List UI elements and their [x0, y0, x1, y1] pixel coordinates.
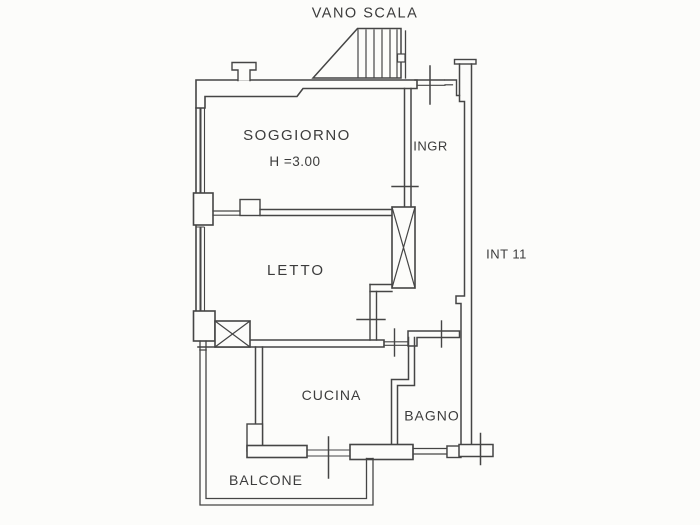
room-label-ingresso: INGR	[413, 139, 448, 154]
west-wall-connector	[200, 341, 206, 350]
stairwell-label: VANO SCALA	[312, 6, 419, 22]
room-label-soggiorno: SOGGIORNO	[243, 127, 351, 144]
east-wall-inner-line	[456, 64, 465, 444]
east-wall	[445, 60, 493, 465]
west-corner-block	[194, 311, 216, 341]
floor-plan-canvas: VANO SCALA SOGGIORNO H =3.00 INGR INT 11…	[0, 0, 700, 525]
entry-step-wall	[445, 80, 460, 96]
shaft-to-wall-step	[370, 285, 392, 292]
window-letto	[196, 227, 205, 311]
east-pier-cap	[455, 60, 477, 65]
letto-vestibule-wall	[370, 285, 377, 341]
room-label-letto: LETTO	[267, 262, 325, 279]
room-label-bagno: BAGNO	[404, 408, 460, 424]
soggiorno-letto-door-threshold	[213, 211, 240, 215]
balcony-parapet-caps	[200, 350, 373, 459]
window-soggiorno	[196, 108, 205, 193]
staircase-symbol	[313, 29, 406, 79]
door-jamb-block	[240, 200, 260, 216]
floor-plan-page: VANO SCALA SOGGIORNO H =3.00 INGR INT 11…	[0, 0, 700, 525]
bagno-window	[413, 446, 447, 457]
stair-outline	[313, 29, 401, 79]
chimney-projection	[232, 63, 256, 81]
south-wall-left	[247, 446, 307, 458]
room-label-balcone: BALCONE	[229, 472, 303, 488]
shaft-x-symbol-corner	[215, 321, 250, 347]
soggiorno-letto-wall	[260, 210, 392, 216]
unit-number-label: INT 11	[486, 247, 527, 262]
east-wall-foot	[459, 445, 493, 457]
south-wall-right	[350, 445, 413, 460]
exterior-walls	[194, 63, 418, 351]
shaft-x-symbol-vertical	[392, 207, 415, 288]
cucina-door-threshold	[384, 342, 408, 346]
soggiorno-ingresso-wall	[405, 89, 412, 208]
west-wall-pier	[194, 193, 214, 225]
south-walls	[247, 445, 461, 460]
north-wall	[196, 80, 417, 108]
ceiling-height-note: H =3.00	[269, 154, 320, 169]
bagno-north-wall	[408, 331, 460, 346]
room-label-cucina: CUCINA	[302, 387, 362, 403]
stair-landing-detail	[398, 54, 406, 62]
